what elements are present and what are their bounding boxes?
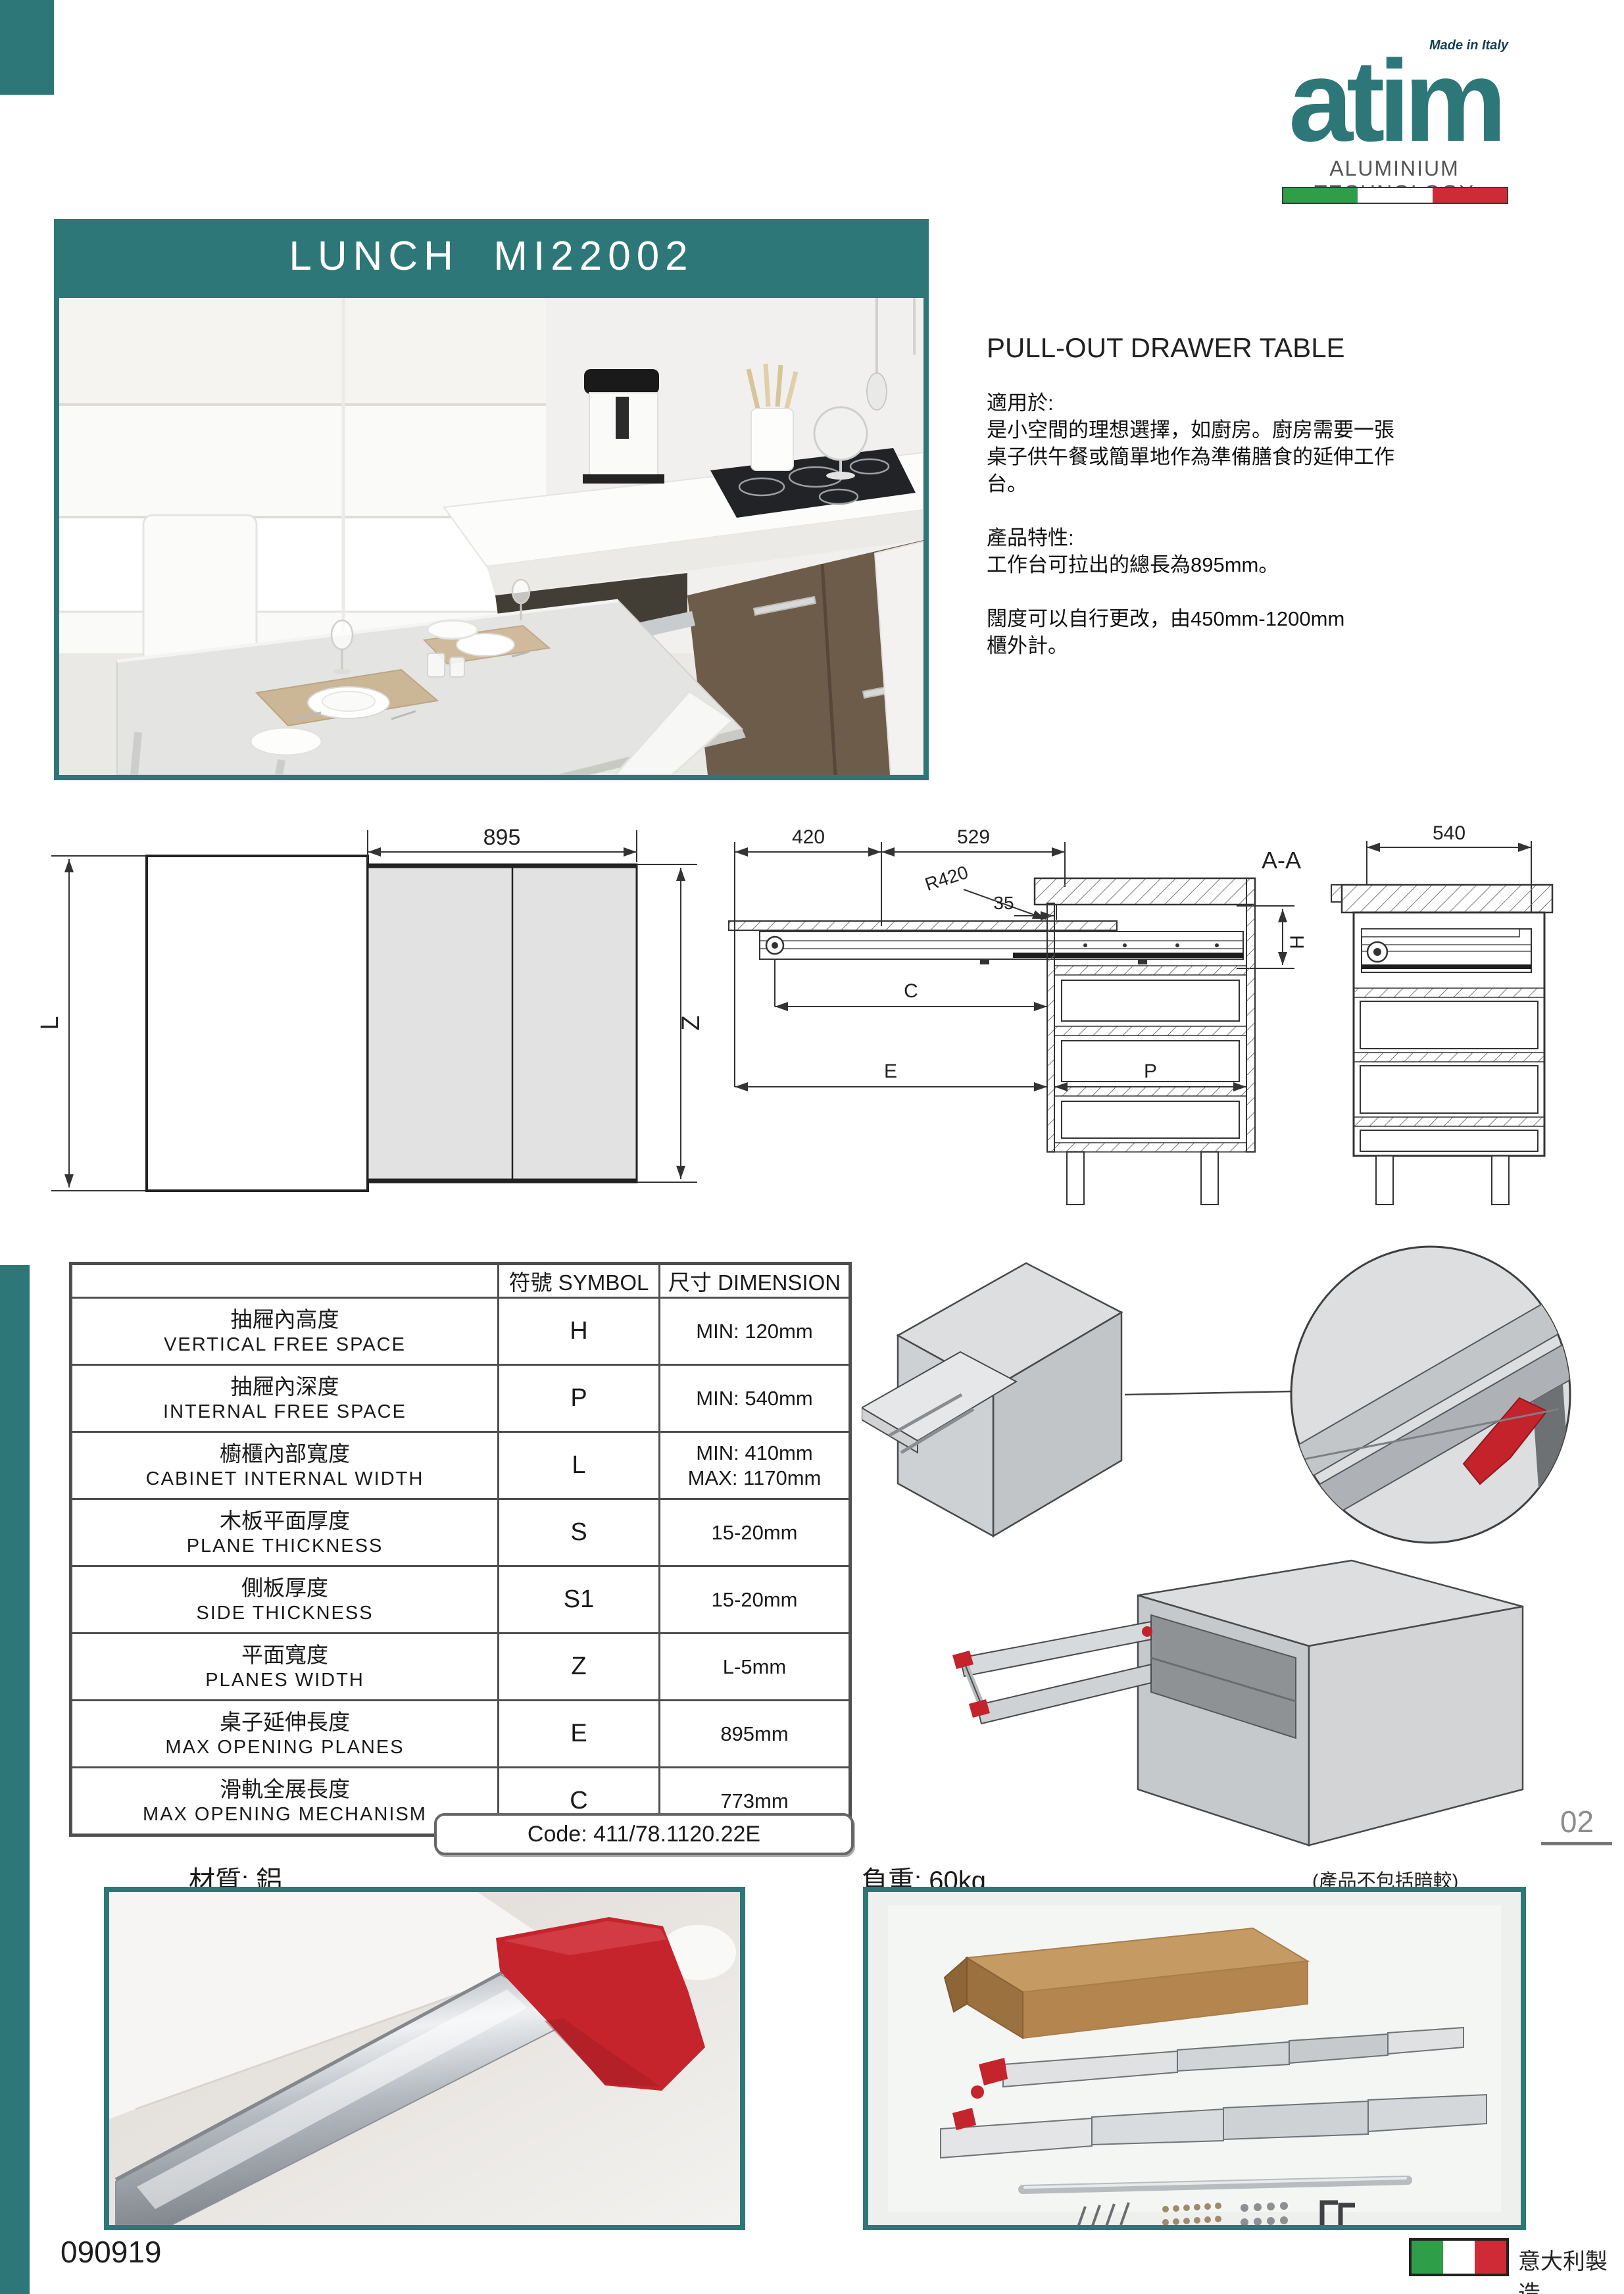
- row-symbol: H: [499, 1298, 660, 1365]
- tabletop-plane-section: [729, 921, 1117, 930]
- product-description: 適用於: 是小空間的理想選擇，如廚房。廚房需要一張 桌子供午餐或簡單地作為準備膳…: [987, 389, 1624, 686]
- row-label-en: VERTICAL FREE SPACE: [72, 1333, 497, 1357]
- flag-green-stripe: [1283, 188, 1358, 203]
- package-contents-photo: [863, 1887, 1526, 2230]
- row-dimension: 15-20mm: [660, 1566, 850, 1633]
- product-name: PULL-OUT DRAWER TABLE: [987, 332, 1618, 364]
- row-symbol: P: [499, 1365, 660, 1432]
- mechanism-renders: [862, 1237, 1618, 1888]
- row-symbol: L: [499, 1432, 660, 1499]
- row-label-zh: 側板厚度: [72, 1575, 497, 1601]
- side-view-drawing: 540: [1322, 816, 1618, 1210]
- row-dimension: MIN: 120mm: [660, 1298, 850, 1365]
- page-number: 02: [1542, 1804, 1612, 1839]
- countertop-side: [1342, 885, 1552, 912]
- table-header-row: 符號 SYMBOL 尺寸 DIMENSION: [71, 1264, 850, 1298]
- kitchen-photo-scene: [59, 298, 923, 775]
- row-dimension: 15-20mm: [660, 1499, 850, 1566]
- row-symbol: S: [499, 1499, 660, 1566]
- row-label-zh: 櫥櫃內部寬度: [72, 1441, 497, 1467]
- flag-green-stripe: [1412, 2241, 1443, 2274]
- row-label-en: CABINET INTERNAL WIDTH: [72, 1467, 497, 1491]
- header-dimension: 尺寸 DIMENSION: [660, 1264, 850, 1298]
- row-label-en: INTERNAL FREE SPACE: [72, 1400, 497, 1424]
- dim-Z-label: Z: [677, 1015, 705, 1030]
- cabinet-plan: [147, 856, 368, 1191]
- product-title-bar: LUNCH MI22002: [54, 219, 929, 293]
- page-number-rule: [1541, 1842, 1612, 1845]
- row-label-zh: 桌子延伸長度: [72, 1709, 497, 1735]
- row-dimension: MIN: 410mm MAX: 1170mm: [660, 1432, 850, 1499]
- row-label-en: SIDE THICKNESS: [72, 1601, 497, 1625]
- brand-logo: Made in Italy atim ALUMINIUM TECHNOLOGY: [1279, 34, 1510, 211]
- spec-table: 符號 SYMBOL 尺寸 DIMENSION 抽屜內高度 VERTICAL FR…: [69, 1262, 852, 1837]
- features-label: 產品特性:: [987, 526, 1074, 549]
- flag-white-stripe: [1358, 188, 1432, 203]
- radius-label: R420: [922, 862, 970, 895]
- rail-detail-photo: [104, 1887, 745, 2230]
- row-label-zh: 滑軌全展長度: [72, 1776, 497, 1803]
- row-symbol: S1: [499, 1566, 660, 1633]
- countertop-section: [1035, 878, 1255, 905]
- usage-text: 是小空間的理想選擇，如廚房。廚房需要一張 桌子供午餐或簡單地作為準備膳食的延伸工…: [987, 418, 1394, 495]
- row-symbol: E: [499, 1701, 660, 1768]
- feature-text: 工作台可拉出的總長為895mm。: [987, 553, 1279, 576]
- dim-529-label: 529: [957, 826, 990, 848]
- usage-label: 適用於:: [987, 391, 1054, 414]
- row-label-zh: 抽屜內高度: [72, 1307, 497, 1333]
- document-number: 090919: [61, 2234, 162, 2270]
- kitchen-photo: [54, 293, 929, 780]
- row-dimension: L-5mm: [660, 1633, 850, 1701]
- dim-L-label: L: [36, 1016, 64, 1030]
- table-row: 抽屜內高度 VERTICAL FREE SPACE H MIN: 120mm: [71, 1298, 850, 1365]
- header-symbol: 符號 SYMBOL: [499, 1264, 660, 1298]
- slide-mechanism-section: [760, 932, 1243, 964]
- row-label-en: PLANES WIDTH: [72, 1668, 497, 1692]
- dim-H-label: H: [1287, 935, 1308, 949]
- render-cabinet-extended: [952, 1560, 1523, 1845]
- slide-mechanism-side: [1362, 929, 1531, 972]
- features-paragraph: 產品特性: 工作台可拉出的總長為895mm。: [987, 524, 1624, 578]
- width-paragraph: 闊度可以自行更改，由450mm-1200mm 櫃外計。: [987, 605, 1624, 659]
- flag-white-stripe: [1443, 2241, 1475, 2274]
- dim-895-label: 895: [483, 825, 521, 850]
- table-row: 抽屜內深度 INTERNAL FREE SPACE P MIN: 540mm: [71, 1365, 850, 1432]
- dim-C-label: C: [904, 980, 918, 1002]
- rail-detail-scene: [109, 1892, 740, 2225]
- dim-540-label: 540: [1433, 822, 1465, 844]
- dim-420-label: 420: [792, 826, 825, 848]
- table-row: 側板厚度 SIDE THICKNESS S1 15-20mm: [71, 1566, 850, 1633]
- corner-accent-block: [0, 0, 54, 95]
- table-row: 木板平面厚度 PLANE THICKNESS S 15-20mm: [71, 1499, 850, 1566]
- package-contents-scene: [868, 1892, 1521, 2225]
- italy-flag-icon: [1282, 187, 1508, 204]
- row-label-zh: 平面寬度: [72, 1642, 497, 1668]
- row-label-en: PLANE THICKNESS: [72, 1534, 497, 1558]
- flag-red-stripe: [1433, 188, 1507, 203]
- row-label-en: MAX OPENING PLANES: [72, 1735, 497, 1759]
- extended-rail-2: [977, 1664, 1151, 1724]
- page-title: LUNCH MI22002: [289, 233, 693, 280]
- row-dimension: MIN: 540mm: [660, 1365, 850, 1432]
- row-dimension: 895mm: [660, 1701, 850, 1768]
- header-empty-cell: [71, 1264, 499, 1298]
- left-accent-bar: [0, 1265, 30, 2294]
- extended-rail-1: [960, 1622, 1151, 1676]
- usage-paragraph: 適用於: 是小空間的理想選擇，如廚房。廚房需要一張 桌子供午餐或簡單地作為準備膳…: [987, 389, 1624, 497]
- window-blinds: [59, 298, 546, 653]
- row-label-zh: 木板平面厚度: [72, 1508, 497, 1534]
- product-code: Code: 411/78.1120.22E: [528, 1822, 760, 1847]
- table-row: 平面寬度 PLANES WIDTH Z L-5mm: [71, 1633, 850, 1701]
- dim-P-label: P: [1144, 1060, 1157, 1082]
- table-row: 櫥櫃內部寬度 CABINET INTERNAL WIDTH L MIN: 410…: [71, 1432, 850, 1499]
- coffee-machine: [583, 369, 664, 484]
- render-cabinet-closed: [862, 1263, 1121, 1536]
- detail-callout-line: [1125, 1391, 1292, 1395]
- dim-35-label: 35: [993, 893, 1014, 913]
- width-text: 闊度可以自行更改，由450mm-1200mm 櫃外計。: [987, 607, 1344, 657]
- made-in-italy-zh: 意大利製造: [1518, 2243, 1624, 2294]
- dim-E-label: E: [884, 1060, 897, 1082]
- flag-red-stripe: [1475, 2241, 1506, 2274]
- catalog-page: Made in Italy atim ALUMINIUM TECHNOLOGY …: [0, 0, 1624, 2294]
- pullout-planes: [368, 864, 637, 1182]
- plan-view-drawing: 895 L Z: [39, 816, 710, 1210]
- section-view-drawing: 420 529 A-A R420 35 H: [717, 816, 1322, 1217]
- brand-name: atim: [1279, 43, 1510, 159]
- section-name-label: A-A: [1262, 847, 1301, 874]
- footer-italy-flag-icon: [1409, 2238, 1509, 2276]
- table-row: 桌子延伸長度 MAX OPENING PLANES E 895mm: [71, 1701, 850, 1768]
- product-code-box: Code: 411/78.1120.22E: [434, 1813, 854, 1855]
- row-symbol: Z: [499, 1633, 660, 1701]
- row-label-zh: 抽屜內深度: [72, 1374, 497, 1400]
